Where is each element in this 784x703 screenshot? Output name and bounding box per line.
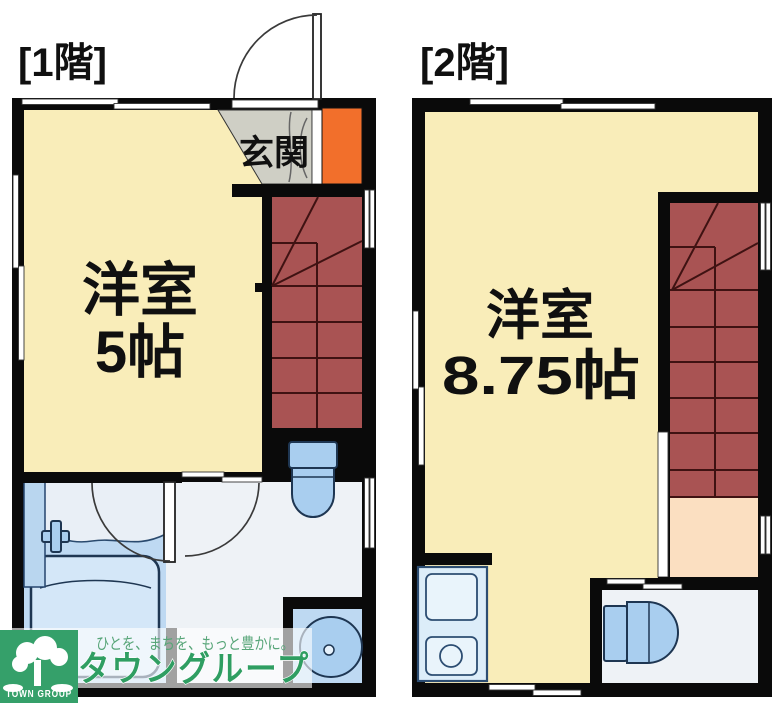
window-1f-right-lower-a [365, 478, 370, 548]
window-2f-right-lower-b [766, 516, 771, 554]
window-2f-right-upper-a [761, 203, 766, 270]
room1-door-panel2 [222, 477, 262, 482]
window-1f-left-a [13, 175, 19, 268]
floorplan-page: [1階] 玄関 [0, 0, 784, 703]
floor2-plan: [2階] [412, 41, 772, 697]
stairs2-door [658, 432, 668, 577]
shoe-storage [322, 108, 362, 184]
window-1f-left-b [19, 266, 25, 360]
window-1f-right-upper-b [370, 190, 375, 248]
shoe-closet-door [312, 110, 322, 184]
room1-door-panel1 [182, 472, 224, 477]
room2-name: 洋室 [486, 286, 594, 346]
window-1f-right-upper-a [365, 190, 370, 248]
floor2-room-top [425, 112, 758, 192]
stairs1-bottom-wall [262, 428, 376, 440]
window-2f-right-lower-a [761, 516, 766, 554]
kitchen-sink [426, 574, 477, 620]
stairs1-wall-stub [255, 283, 272, 292]
stairs2-top-wall [658, 192, 758, 203]
toilet2-bowl [627, 602, 678, 663]
window-2f-left-b [419, 387, 425, 465]
watermark-brand: タウングループ [78, 650, 310, 689]
stairs2-left-wall [658, 192, 670, 432]
window-2f-top-a [470, 99, 563, 105]
entrance-door-arc [234, 15, 317, 98]
floor2-label: [2階] [420, 41, 509, 85]
window-1f-top-b [114, 104, 210, 110]
stairs1-left-wall [262, 184, 272, 440]
stairs2-landing [670, 497, 758, 577]
window-2f-bottom-a [489, 685, 535, 691]
toiletroom2-left-wall [590, 578, 602, 683]
basinroom-top-wall [283, 597, 376, 609]
washroom-door-leaf [164, 482, 175, 562]
entrance-threshold [232, 100, 318, 108]
genkan-label: 玄関 [239, 134, 309, 173]
room2-size: 8.75帖 [442, 346, 640, 406]
floor1-plan: [1階] 玄関 [12, 14, 376, 697]
room1-bottom-wall [12, 472, 182, 483]
genkan-bottom-wall [232, 184, 376, 197]
window-2f-bottom-b [533, 690, 581, 696]
window-1f-top-a [22, 99, 118, 105]
window-2f-right-upper-b [766, 203, 771, 270]
basin-drain [324, 645, 334, 655]
floor1-label: [1階] [18, 41, 107, 85]
town-group-text: TOWN GROUP [6, 688, 72, 700]
floorplan-svg: [1階] 玄関 [0, 0, 784, 703]
kitchen-top-wall [412, 553, 492, 565]
window-2f-left-a [413, 311, 419, 389]
entrance-door-leaf [313, 14, 321, 99]
kitchen-burner-icon [440, 645, 462, 667]
toiletroom2-door-panel1 [607, 579, 645, 584]
toilet1-tank [289, 442, 337, 468]
window-2f-top-b [561, 104, 655, 110]
toilet2-tank [604, 606, 627, 661]
toilet1-bowl [292, 468, 334, 517]
window-1f-right-lower-b [370, 478, 375, 548]
room1-name: 洋室 [82, 258, 198, 323]
room1-size: 5帖 [95, 320, 185, 385]
toiletroom2-door-panel2 [643, 584, 682, 589]
faucet-handle-icon [51, 521, 61, 552]
